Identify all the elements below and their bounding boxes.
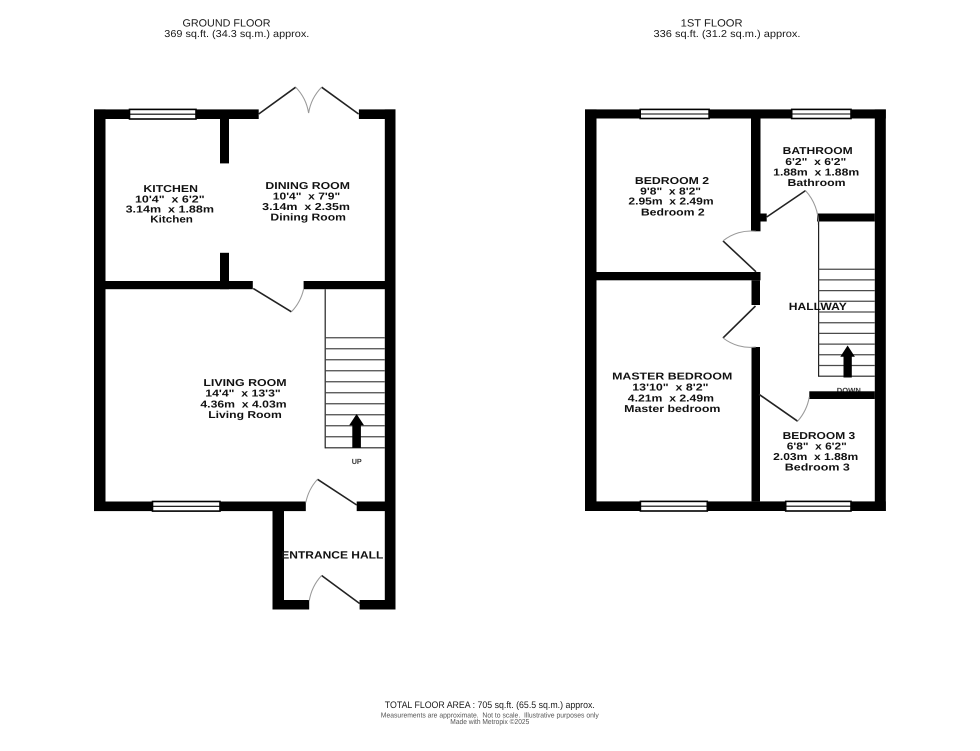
svg-text:UP: UP	[352, 457, 362, 466]
svg-text:4.36m x 4.03m: 4.36m x 4.03m	[200, 399, 286, 410]
svg-text:4.21m x 2.49m: 4.21m x 2.49m	[628, 393, 714, 404]
svg-text:Kitchen: Kitchen	[150, 214, 193, 225]
svg-text:ENTRANCE HALL: ENTRANCE HALL	[281, 550, 384, 562]
svg-text:BEDROOM 3: BEDROOM 3	[783, 431, 856, 442]
svg-text:Bedroom 3: Bedroom 3	[785, 462, 851, 473]
svg-text:13'10" x 8'2": 13'10" x 8'2"	[632, 382, 709, 393]
svg-text:369 sq.ft. (34.3 sq.m.) approx: 369 sq.ft. (34.3 sq.m.) approx.	[164, 29, 309, 40]
svg-text:3.14m x 2.35m: 3.14m x 2.35m	[262, 202, 350, 213]
svg-text:1.88m x 1.88m: 1.88m x 1.88m	[773, 167, 859, 178]
svg-text:Master bedroom: Master bedroom	[624, 404, 720, 415]
svg-text:2.03m x 1.88m: 2.03m x 1.88m	[773, 452, 858, 463]
svg-text:14'4" x 13'3": 14'4" x 13'3"	[205, 389, 281, 400]
svg-text:6'2" x 6'2": 6'2" x 6'2"	[785, 157, 846, 168]
svg-text:336 sq.ft. (31.2 sq.m.) approx: 336 sq.ft. (31.2 sq.m.) approx.	[654, 29, 801, 40]
svg-text:MASTER BEDROOM: MASTER BEDROOM	[612, 371, 732, 382]
svg-text:BATHROOM: BATHROOM	[783, 146, 853, 157]
svg-text:2.95m x 2.49m: 2.95m x 2.49m	[628, 197, 713, 208]
svg-text:GROUND FLOOR: GROUND FLOOR	[183, 18, 271, 30]
svg-text:KITCHEN: KITCHEN	[143, 184, 198, 195]
svg-text:DINING ROOM: DINING ROOM	[265, 181, 350, 192]
svg-text:6'8" x 6'2": 6'8" x 6'2"	[787, 442, 847, 453]
svg-text:Made with Metropix ©2025: Made with Metropix ©2025	[450, 717, 529, 726]
svg-text:1ST FLOOR: 1ST FLOOR	[681, 18, 743, 30]
svg-text:Bathroom: Bathroom	[788, 178, 846, 189]
svg-text:10'4" x 7'9": 10'4" x 7'9"	[273, 191, 341, 202]
svg-text:Living Room: Living Room	[208, 410, 282, 421]
svg-text:BEDROOM 2: BEDROOM 2	[635, 176, 710, 187]
svg-text:Dining Room: Dining Room	[270, 213, 346, 224]
svg-text:HALLWAY: HALLWAY	[789, 301, 847, 313]
svg-text:Bedroom 2: Bedroom 2	[641, 207, 705, 218]
svg-text:LIVING ROOM: LIVING ROOM	[203, 378, 286, 389]
